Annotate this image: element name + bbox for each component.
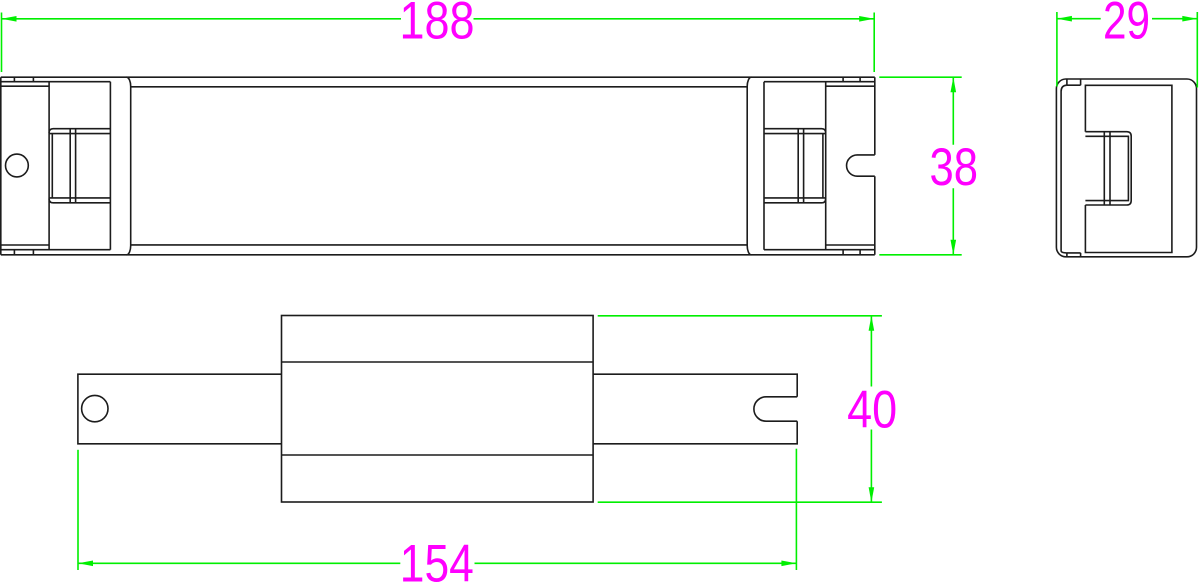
svg-text:188: 188	[400, 0, 475, 51]
svg-text:154: 154	[400, 535, 474, 584]
svg-text:40: 40	[847, 380, 897, 439]
svg-text:29: 29	[1103, 0, 1150, 50]
svg-text:38: 38	[930, 138, 979, 197]
